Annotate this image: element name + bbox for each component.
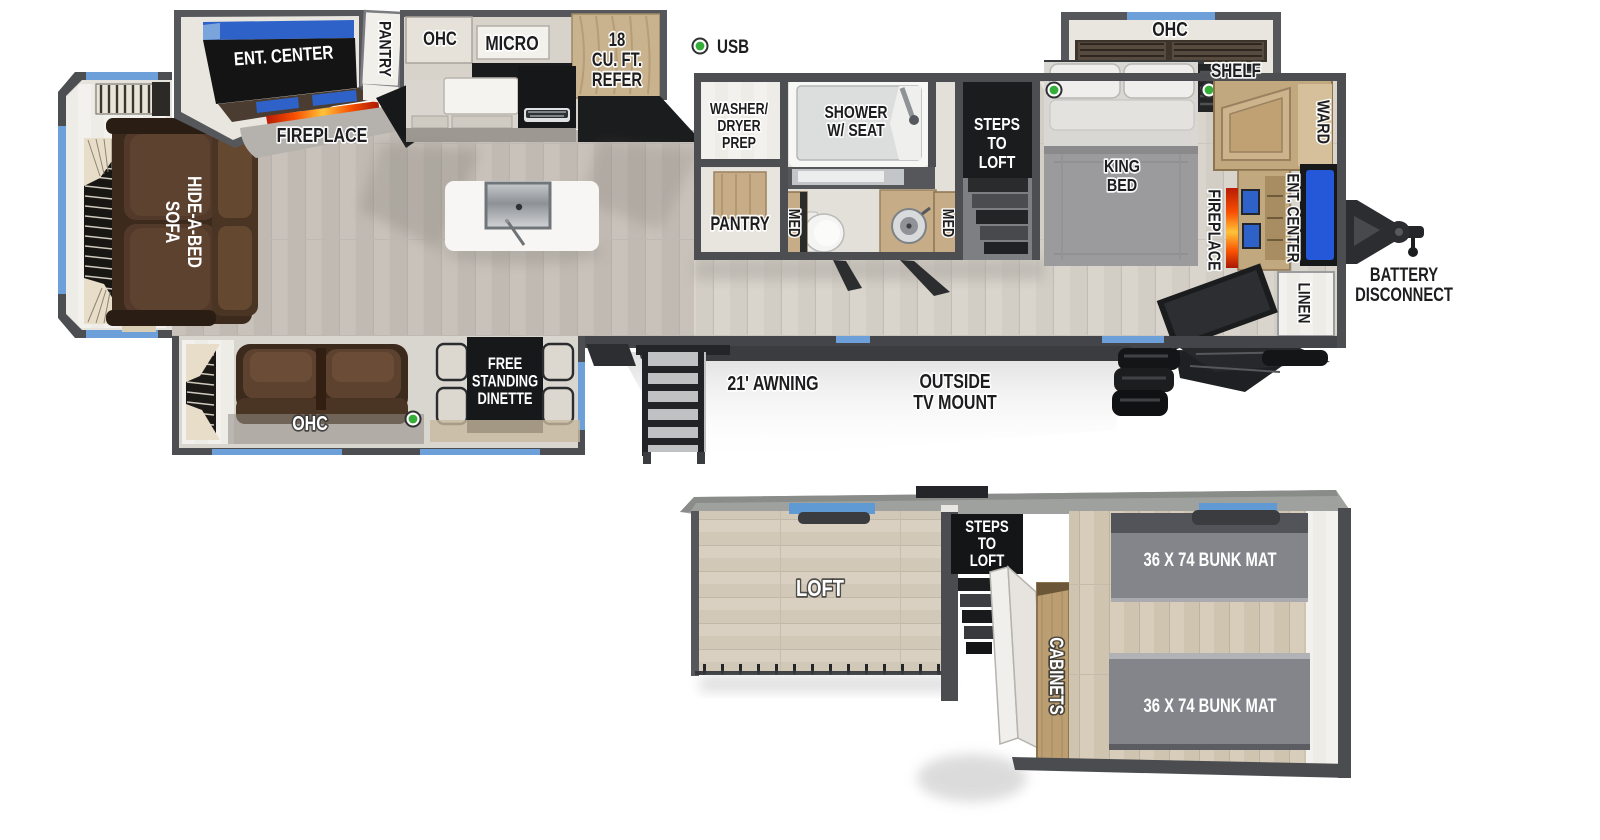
- svg-text:PANTRY: PANTRY: [710, 213, 770, 234]
- svg-text:DISCONNECT: DISCONNECT: [1355, 284, 1453, 305]
- svg-text:SHELF: SHELF: [1211, 59, 1261, 81]
- svg-text:OUTSIDE: OUTSIDE: [919, 370, 990, 392]
- svg-text:OHC: OHC: [1152, 18, 1188, 40]
- svg-text:MED: MED: [938, 209, 956, 237]
- svg-text:DRYER: DRYER: [717, 118, 761, 136]
- svg-text:LOFT: LOFT: [796, 576, 844, 601]
- svg-text:LOFT: LOFT: [979, 152, 1016, 172]
- svg-text:36 X 74 BUNK MAT: 36 X 74 BUNK MAT: [1144, 549, 1277, 570]
- svg-text:BED: BED: [1107, 176, 1138, 196]
- svg-text:OHC: OHC: [292, 412, 328, 434]
- svg-text:KING: KING: [1104, 157, 1140, 177]
- svg-text:PREP: PREP: [722, 135, 756, 153]
- svg-text:REFER: REFER: [592, 69, 642, 90]
- svg-text:36 X 74 BUNK MAT: 36 X 74 BUNK MAT: [1144, 695, 1277, 716]
- svg-text:WASHER/: WASHER/: [710, 101, 768, 119]
- svg-text:18: 18: [609, 29, 625, 50]
- svg-text:FREE: FREE: [488, 356, 522, 374]
- svg-text:FIREPLACE: FIREPLACE: [1204, 189, 1224, 271]
- svg-text:TV MOUNT: TV MOUNT: [913, 391, 997, 413]
- svg-text:STEPS: STEPS: [974, 114, 1020, 134]
- svg-text:LOFT: LOFT: [970, 552, 1005, 571]
- svg-text:FIREPLACE: FIREPLACE: [277, 124, 368, 146]
- svg-text:W/ SEAT: W/ SEAT: [827, 120, 885, 140]
- svg-text:ENT. CENTER: ENT. CENTER: [1283, 173, 1302, 262]
- svg-text:CABINETS: CABINETS: [1046, 637, 1068, 715]
- svg-text:USB: USB: [717, 35, 749, 57]
- svg-text:LINEN: LINEN: [1294, 283, 1313, 324]
- svg-text:STANDING: STANDING: [472, 373, 538, 391]
- svg-text:CU. FT.: CU. FT.: [592, 49, 642, 70]
- svg-text:BATTERY: BATTERY: [1370, 264, 1439, 285]
- svg-text:WARD: WARD: [1313, 100, 1333, 144]
- svg-text:OHC: OHC: [423, 27, 457, 49]
- svg-text:DINETTE: DINETTE: [477, 391, 532, 409]
- svg-text:PANTRY: PANTRY: [375, 21, 394, 77]
- svg-text:MICRO: MICRO: [485, 32, 538, 54]
- svg-text:HIDE-A-BED: HIDE-A-BED: [184, 176, 206, 268]
- svg-text:TO: TO: [987, 133, 1006, 153]
- svg-text:SOFA: SOFA: [162, 201, 184, 244]
- svg-text:21' AWNING: 21' AWNING: [727, 372, 818, 394]
